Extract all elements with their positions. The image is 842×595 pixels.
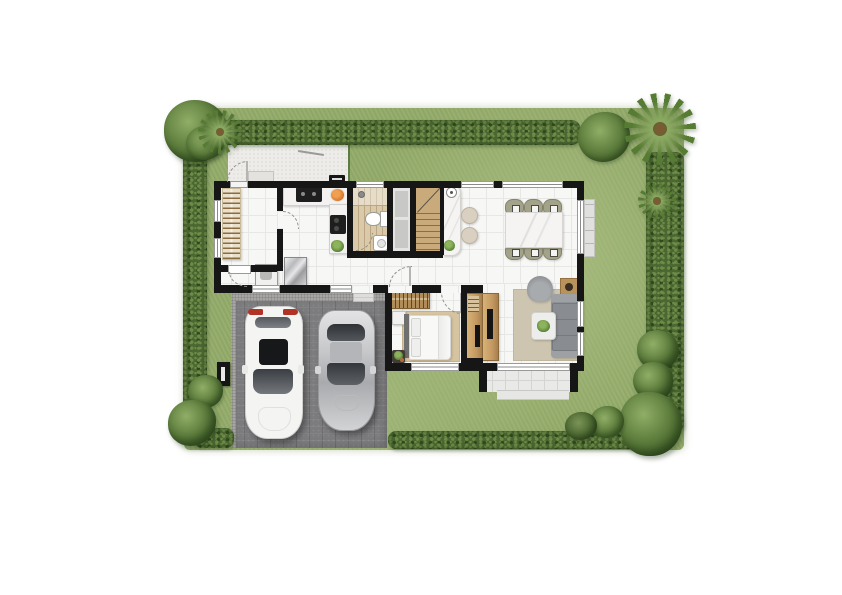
sofa-armrest xyxy=(551,294,577,302)
bar-plant xyxy=(444,240,455,251)
car-suv-white xyxy=(245,306,303,439)
sofa-armrest xyxy=(551,350,577,358)
dining-table xyxy=(505,212,563,248)
palm-top-right-corner xyxy=(624,93,696,165)
hood-line xyxy=(258,407,291,431)
wall-strip-right xyxy=(410,181,416,258)
burner xyxy=(334,226,339,231)
plant-pot xyxy=(400,358,404,362)
bedroom-door-opening xyxy=(441,285,461,293)
basin-bowl xyxy=(377,239,386,248)
bedroom-window xyxy=(411,363,459,371)
closet-panel xyxy=(395,191,408,217)
side-mirror xyxy=(370,366,376,374)
wash-basin xyxy=(373,235,388,251)
living-window-right-1 xyxy=(577,301,584,327)
side-mirror xyxy=(242,365,248,374)
hood-vent xyxy=(334,395,360,411)
cabinet-shelves xyxy=(468,296,479,312)
sofa-cushion xyxy=(552,335,578,351)
bar-drain xyxy=(450,191,453,194)
rear-window xyxy=(255,317,291,328)
duvet-shade xyxy=(439,316,450,359)
counter-plant xyxy=(331,240,344,252)
wall-tv-left xyxy=(461,293,467,365)
dining-window-sill xyxy=(584,199,595,257)
stair-closet-strip xyxy=(393,187,410,252)
stair-treads xyxy=(416,213,440,253)
back-door-opening xyxy=(230,181,248,188)
front-door-leaf xyxy=(409,266,411,286)
coffee-table-plant xyxy=(537,320,550,332)
bar-sink xyxy=(446,187,457,198)
floor-plan-canvas xyxy=(0,0,842,595)
terrace-wall-right xyxy=(570,368,578,392)
bathroom-window xyxy=(356,181,384,188)
bed xyxy=(409,315,451,360)
dining-window-top-1 xyxy=(461,181,494,188)
kitchen-window-bottom xyxy=(330,285,352,293)
wall-tv-bottom xyxy=(461,358,483,364)
shower-drain xyxy=(358,191,365,198)
windshield xyxy=(253,369,293,394)
windshield xyxy=(327,363,365,385)
taillight xyxy=(248,309,263,315)
bar-stool xyxy=(461,227,478,244)
wall-utility-kitchen xyxy=(277,181,283,211)
stair-direction-line xyxy=(417,188,440,213)
driveway-gravel-edge xyxy=(231,293,236,448)
toilet-bowl xyxy=(365,212,381,226)
living-window-bottom xyxy=(497,363,570,371)
armchair xyxy=(527,276,553,302)
wall-wing-left xyxy=(385,285,392,371)
faucet xyxy=(312,192,316,196)
bench-with-plant xyxy=(392,350,405,363)
slatted-shelf-rack xyxy=(222,188,241,260)
hedge-top xyxy=(196,120,580,145)
wall-stair-right xyxy=(440,181,444,255)
terrace-wall-left xyxy=(479,368,487,392)
tv-screen xyxy=(475,325,480,347)
taillight xyxy=(283,309,298,315)
meter-slit xyxy=(221,367,225,381)
living-tv-cabinet xyxy=(482,293,499,361)
palm-top-left xyxy=(198,110,242,154)
palm-right-side xyxy=(638,183,676,219)
coffee-table xyxy=(531,312,556,340)
living-window-right-2 xyxy=(577,332,584,356)
large-tree-bottom-right xyxy=(620,392,682,456)
sunroof xyxy=(259,339,288,365)
wall-left xyxy=(214,181,221,293)
bedroom-tv-cabinet xyxy=(466,293,483,359)
refrigerator xyxy=(284,257,307,287)
burner xyxy=(334,218,339,223)
cooktop xyxy=(330,215,346,234)
pillow xyxy=(411,338,421,357)
roof xyxy=(330,342,362,362)
fruit-bowl xyxy=(331,189,344,201)
shower-area xyxy=(352,187,387,206)
carport-doorway xyxy=(352,285,373,293)
utility-window-1 xyxy=(214,200,221,222)
utility-window-2 xyxy=(214,238,221,258)
staircase xyxy=(415,186,441,254)
carport-door-steps xyxy=(353,293,374,302)
wall-mid xyxy=(280,285,330,293)
table-lamp xyxy=(565,283,573,291)
terrace-step xyxy=(497,390,569,400)
toilet xyxy=(365,211,386,225)
ac-condenser-unit xyxy=(329,175,345,183)
back-door-leaf xyxy=(246,161,248,181)
side-mirror xyxy=(298,365,304,374)
terrace xyxy=(479,368,578,392)
side-mirror xyxy=(315,366,321,374)
dining-window-top-2 xyxy=(502,181,563,188)
wall-utility-kitchen xyxy=(277,229,283,271)
wall-tv-top xyxy=(461,285,483,293)
sink-unit xyxy=(296,187,322,202)
dining-window-right xyxy=(577,200,584,254)
wall-mid xyxy=(412,285,441,293)
wall-kitchen-bath xyxy=(347,181,353,258)
wall-hall xyxy=(347,251,443,258)
closet-panel xyxy=(395,220,408,248)
rear-window xyxy=(327,324,365,341)
faucet xyxy=(301,192,305,196)
pillow xyxy=(411,318,421,337)
bar-stool xyxy=(461,207,478,224)
wall-bath-right xyxy=(387,181,393,258)
ac-vent-slit xyxy=(332,178,342,180)
tv-screen xyxy=(487,309,493,339)
utility-window-bottom xyxy=(252,285,280,293)
car-coupe-silver xyxy=(318,310,375,431)
